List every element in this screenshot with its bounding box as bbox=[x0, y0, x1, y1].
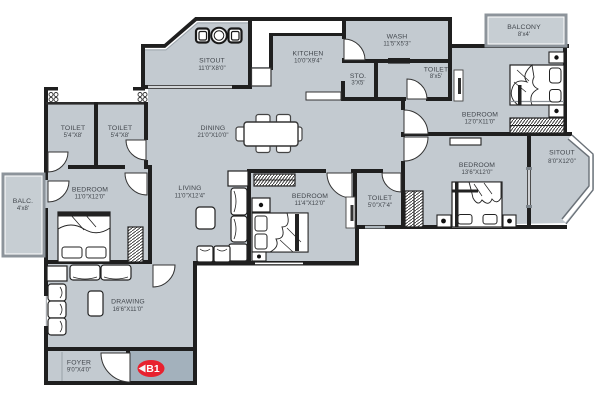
svg-text:B1: B1 bbox=[146, 363, 160, 375]
svg-text:KITCHEN: KITCHEN bbox=[293, 51, 324, 58]
svg-text:TOILET: TOILET bbox=[368, 195, 393, 202]
svg-text:TOILET: TOILET bbox=[424, 67, 449, 74]
svg-text:11'0"X8'0": 11'0"X8'0" bbox=[198, 66, 225, 72]
svg-text:SITOUT: SITOUT bbox=[549, 150, 575, 157]
svg-text:BALC.: BALC. bbox=[13, 198, 33, 205]
svg-text:9'0"X4'0": 9'0"X4'0" bbox=[67, 368, 91, 374]
svg-text:8'0"X12'0": 8'0"X12'0" bbox=[548, 159, 576, 165]
svg-text:3'X5': 3'X5' bbox=[351, 81, 364, 87]
svg-text:8'x5': 8'x5' bbox=[430, 74, 442, 80]
svg-text:DRAWING: DRAWING bbox=[111, 299, 145, 306]
svg-text:5'0"X7'4": 5'0"X7'4" bbox=[368, 203, 392, 209]
svg-text:STO.: STO. bbox=[350, 73, 366, 80]
svg-text:13'6"X12'0": 13'6"X12'0" bbox=[461, 170, 492, 176]
svg-text:11'0"X12'0": 11'0"X12'0" bbox=[75, 195, 106, 201]
svg-text:11'5"X5'3": 11'5"X5'3" bbox=[383, 42, 410, 48]
svg-text:5'4"X8': 5'4"X8' bbox=[111, 133, 130, 139]
svg-text:TOILET: TOILET bbox=[108, 125, 133, 132]
svg-text:BEDROOM: BEDROOM bbox=[459, 162, 495, 169]
svg-text:BALCONY: BALCONY bbox=[507, 24, 541, 31]
svg-text:4'x8': 4'x8' bbox=[17, 206, 29, 212]
svg-text:LIVING: LIVING bbox=[178, 185, 201, 192]
svg-text:16'6"X11'0": 16'6"X11'0" bbox=[113, 307, 144, 313]
svg-text:5'4"X8': 5'4"X8' bbox=[64, 133, 83, 139]
svg-text:BEDROOM: BEDROOM bbox=[292, 193, 328, 200]
svg-text:BEDROOM: BEDROOM bbox=[72, 187, 108, 194]
svg-text:FOYER: FOYER bbox=[67, 360, 91, 367]
svg-text:SITOUT: SITOUT bbox=[199, 58, 225, 65]
svg-text:WASH: WASH bbox=[387, 34, 408, 41]
svg-text:DINING: DINING bbox=[201, 125, 226, 132]
svg-text:11'4"X12'0": 11'4"X12'0" bbox=[295, 201, 326, 207]
svg-text:12'0"X11'0": 12'0"X11'0" bbox=[465, 120, 496, 126]
svg-text:TOILET: TOILET bbox=[61, 125, 86, 132]
svg-text:BEDROOM: BEDROOM bbox=[462, 112, 498, 119]
svg-text:8'x4': 8'x4' bbox=[518, 32, 530, 38]
svg-text:11'0"X12'4": 11'0"X12'4" bbox=[175, 194, 206, 200]
svg-text:21'0"X10'0": 21'0"X10'0" bbox=[197, 133, 228, 139]
svg-text:10'0"X9'4": 10'0"X9'4" bbox=[294, 59, 322, 65]
